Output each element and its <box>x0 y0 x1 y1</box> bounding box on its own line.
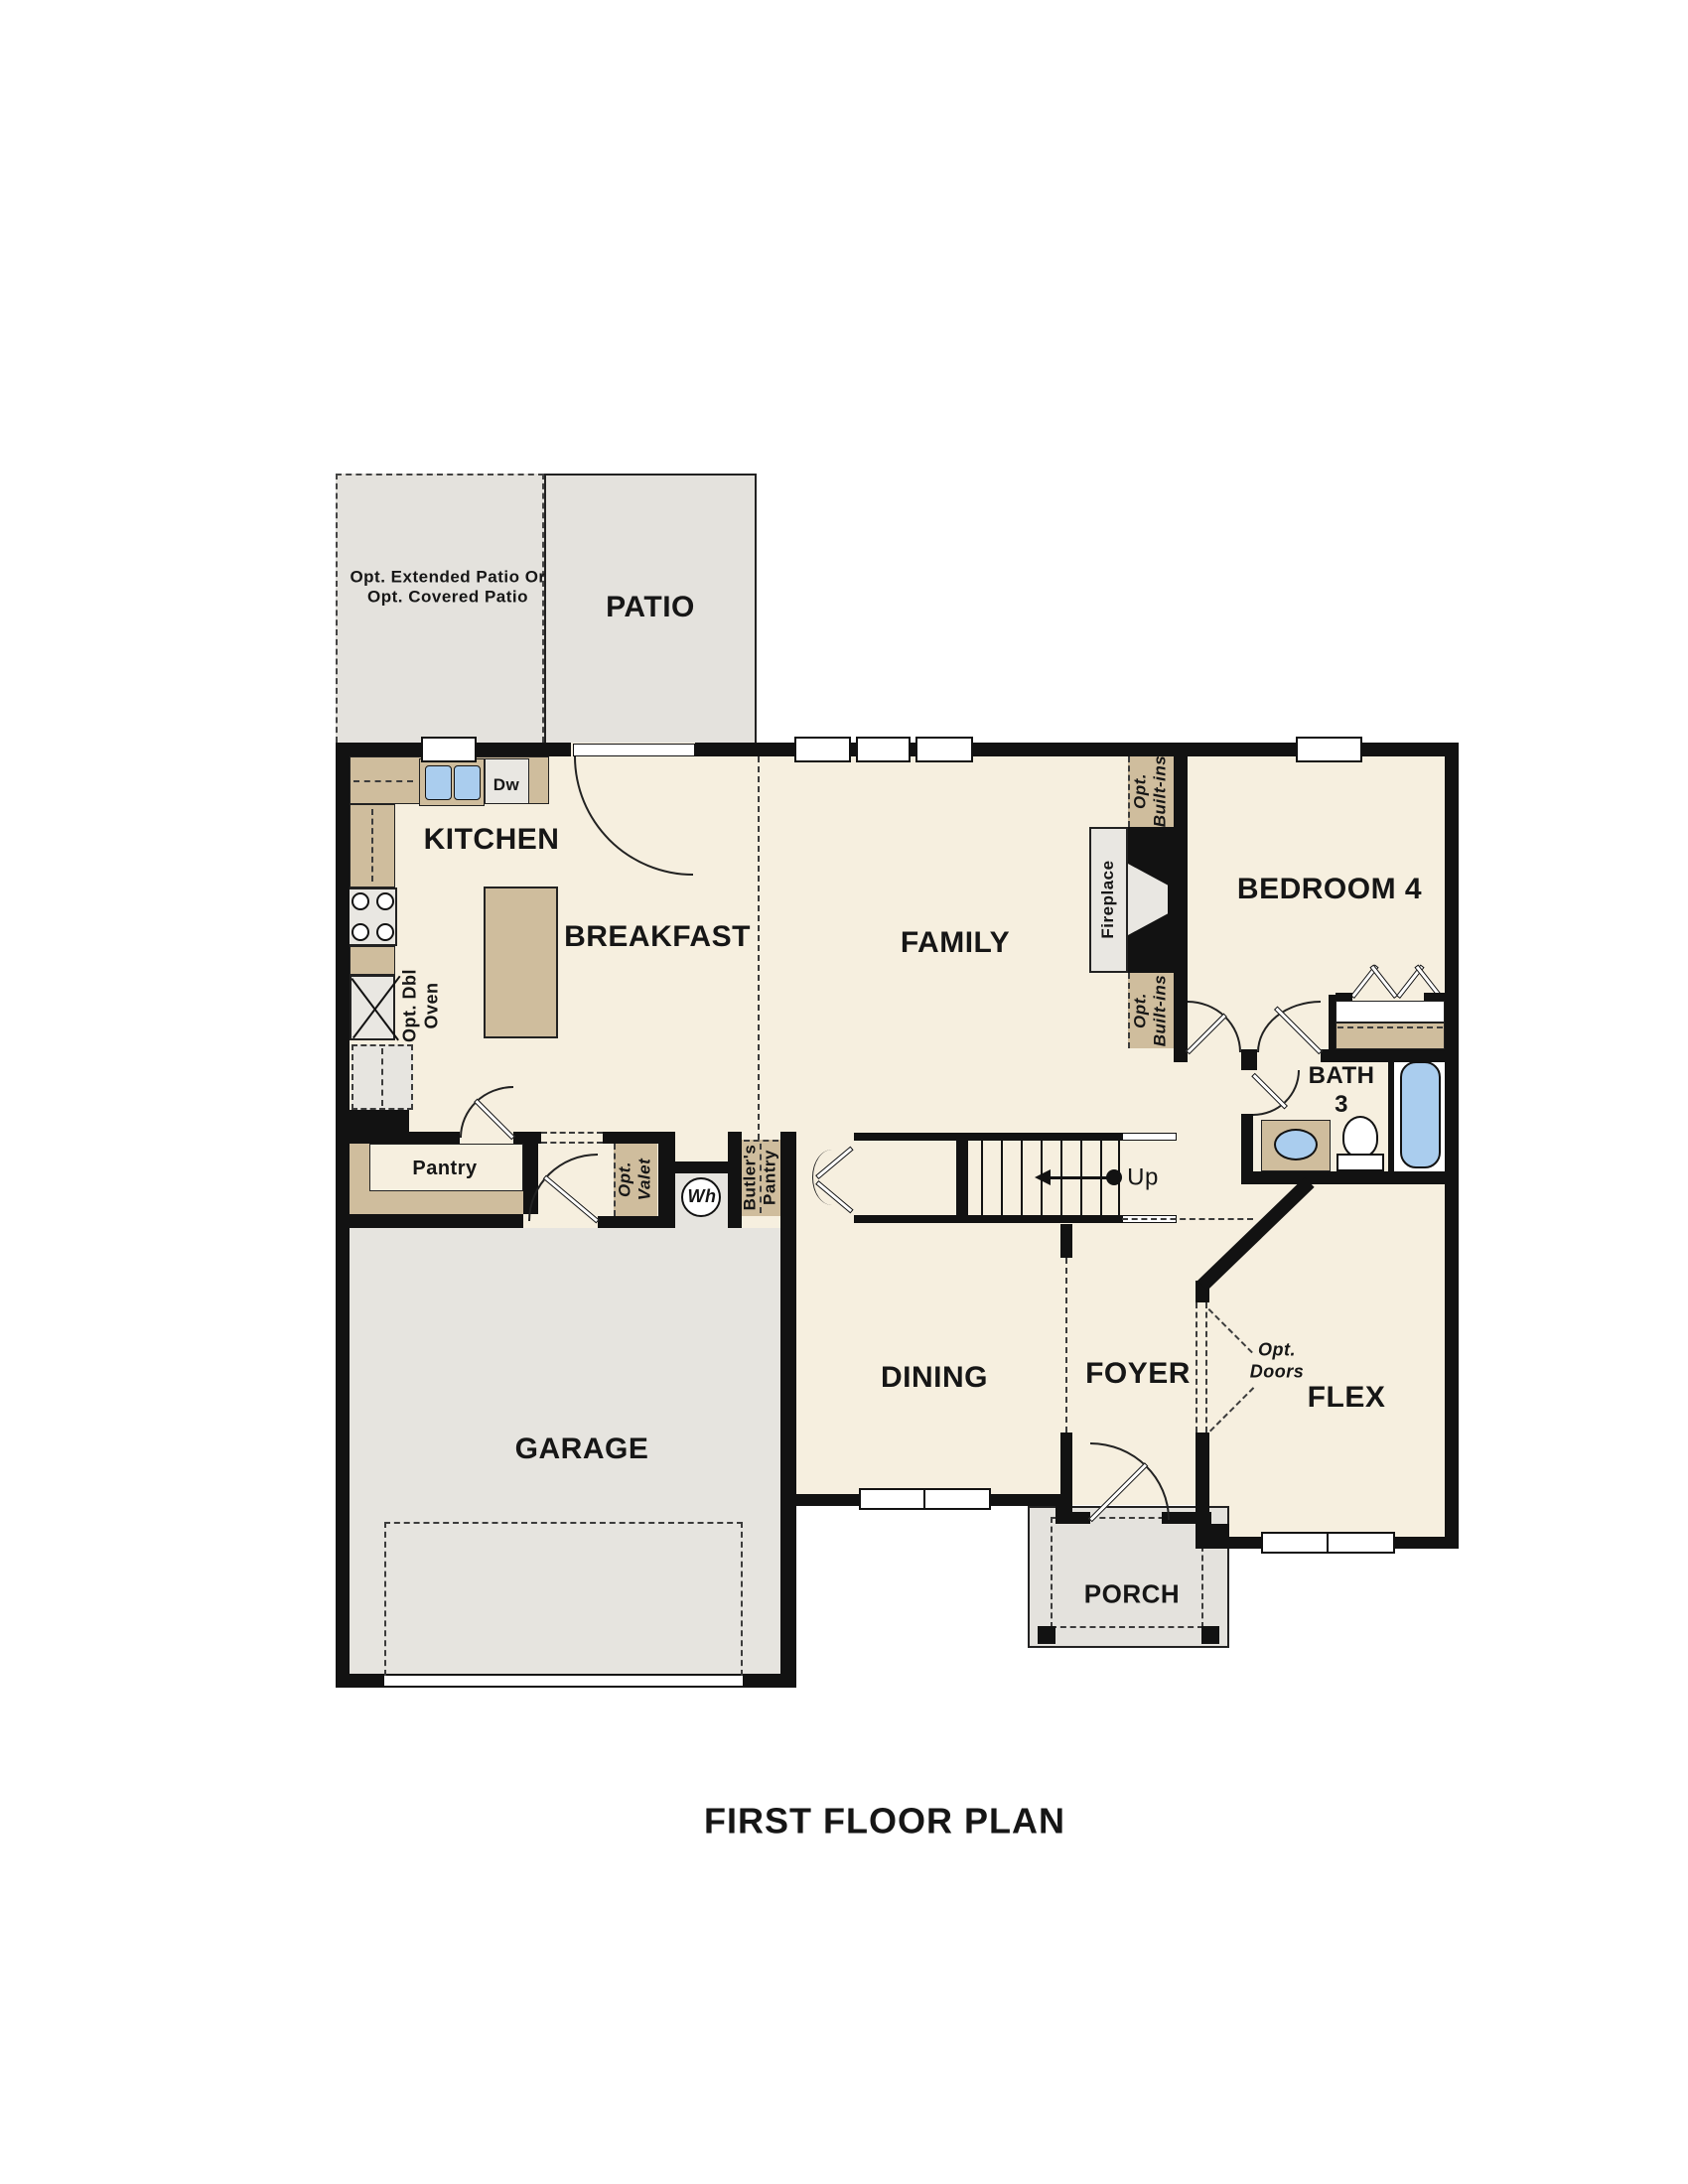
wall-tub-niche <box>1388 1054 1394 1171</box>
toilet-tank <box>1336 1154 1384 1171</box>
room-label-flex: FLEX <box>1308 1380 1386 1416</box>
wall-garage-dining <box>780 1132 796 1688</box>
room-label-bath3: BATH 3 <box>1309 1062 1375 1120</box>
kitchen-island <box>484 887 558 1038</box>
family-window <box>915 737 973 762</box>
room-label-dining: DINING <box>881 1360 988 1396</box>
family-window <box>856 737 911 762</box>
garage-door-opening <box>384 1674 743 1688</box>
water-heater-label: Wh <box>688 1186 717 1208</box>
optional-double-oven-label: Opt. Dbl Oven <box>399 969 442 1042</box>
room-label-bedroom4: BEDROOM 4 <box>1237 872 1422 907</box>
wall-stairs-closet <box>956 1141 968 1215</box>
burner <box>352 923 369 941</box>
optional-cabinet-divider <box>381 1048 383 1106</box>
stair-tread <box>1001 1141 1003 1215</box>
wall-kitchen-stub <box>336 1110 409 1132</box>
optional-builtins-top-label: Opt. Built-ins <box>1131 755 1172 828</box>
room-label-kitchen: KITCHEN <box>424 822 560 858</box>
optional-doors-label: Opt. Doors <box>1250 1339 1305 1382</box>
kitchen-counter-below-range <box>350 946 395 975</box>
garage-door-dashed-outline <box>384 1522 743 1676</box>
optional-valet-label: Opt. Valet <box>616 1159 656 1201</box>
dining-foyer-divider-dashed <box>1065 1258 1067 1433</box>
stair-tread <box>1021 1141 1023 1215</box>
plan-title: FIRST FLOOR PLAN <box>704 1799 1065 1842</box>
stair-arrowhead <box>1035 1169 1051 1185</box>
burner <box>376 923 394 941</box>
bedroom-closet-interior <box>1336 1001 1445 1023</box>
room-label-porch: PORCH <box>1084 1578 1180 1609</box>
wall-garage-top-seg <box>598 1216 658 1228</box>
sink-basin-right <box>454 765 481 800</box>
porch-column-left <box>1038 1626 1055 1644</box>
stair-tread <box>981 1141 983 1215</box>
floor-plan-canvas: Dw Opt. Dbl Oven Pantry Opt. Valet Wh Bu… <box>0 0 1688 2184</box>
stair-dot <box>1106 1169 1122 1185</box>
stair-up-label: Up <box>1127 1164 1159 1193</box>
wall-closet-top-left <box>1336 993 1352 1001</box>
pantry-label: Pantry <box>412 1157 477 1180</box>
butlers-pantry-opening <box>744 1140 778 1142</box>
room-label-breakfast: BREAKFAST <box>564 919 751 955</box>
pantry-shelf-bottom <box>369 1191 523 1214</box>
patio-optional-extension-floor <box>336 474 544 743</box>
counter-depth-line <box>353 780 413 782</box>
wall-stairs-top <box>854 1133 1122 1141</box>
wall-flex-left-bottom <box>1196 1433 1209 1549</box>
wall-porch-post <box>1207 1524 1229 1541</box>
cased-opening-dashed <box>541 1132 603 1134</box>
butlers-pantry-label: Butler's Pantry <box>741 1145 781 1211</box>
wall-pantry-bottom <box>336 1214 523 1228</box>
breakfast-family-divider-dashed <box>758 756 760 1140</box>
wall-stairs-bottom <box>854 1215 1122 1223</box>
bathtub <box>1400 1061 1441 1168</box>
kitchen-window <box>421 737 477 762</box>
wall-closet-left <box>1329 995 1336 1049</box>
wall-right-exterior <box>1445 743 1459 1549</box>
porch-column-right <box>1201 1626 1219 1644</box>
wall-foyer-nib-top <box>1060 1224 1072 1258</box>
flex-opening-dashed <box>1205 1302 1207 1433</box>
wall-closet-top-right <box>1424 993 1445 1001</box>
wall-family-bedroom <box>1174 756 1188 1062</box>
bath-sink <box>1274 1129 1318 1160</box>
flex-opening-dashed <box>1196 1302 1197 1433</box>
burner <box>376 892 394 910</box>
wall-pantry-top-b <box>513 1132 541 1144</box>
wall-foyer-nib-bottom <box>1060 1433 1072 1506</box>
wall-bath-left <box>1241 1114 1253 1171</box>
patio-door-leaf <box>573 744 695 756</box>
flex-window-mullion <box>1327 1534 1329 1552</box>
stair-rail-top <box>1122 1133 1177 1141</box>
cased-opening-dashed <box>541 1142 603 1144</box>
wall-pantry-top-a <box>336 1132 460 1144</box>
room-label-family: FAMILY <box>901 925 1010 961</box>
wall-mudhall-right <box>658 1132 675 1228</box>
wall-nook-butler <box>728 1132 742 1228</box>
room-label-garage: GARAGE <box>515 1432 649 1467</box>
closet-door-arc <box>812 1150 852 1205</box>
dining-window-mullion <box>923 1490 925 1508</box>
closet-rod-dashed <box>1337 1026 1443 1028</box>
hall-foyer-dashed <box>1122 1218 1253 1220</box>
sink-basin-left <box>425 765 452 800</box>
counter-depth-line <box>371 809 373 882</box>
fireplace-label: Fireplace <box>1098 860 1118 938</box>
stair-direction-line <box>1051 1176 1114 1179</box>
dishwasher-label: Dw <box>493 775 520 795</box>
wall-door-nib <box>1241 1049 1257 1070</box>
wall-mudhall-top <box>603 1132 658 1144</box>
family-window <box>794 737 851 762</box>
porch-inner-dashed-outline <box>1051 1517 1203 1628</box>
bedroom-window <box>1296 737 1362 762</box>
pantry-shelf-left <box>350 1144 369 1214</box>
optional-builtins-bottom-label: Opt. Built-ins <box>1131 975 1172 1047</box>
wall-bath-bottom <box>1241 1171 1459 1184</box>
room-label-foyer: FOYER <box>1085 1356 1191 1392</box>
room-label-patio: PATIO <box>606 590 695 625</box>
optional-patio-note: Opt. Extended Patio Or Opt. Covered Pati… <box>350 568 545 609</box>
wall-nook-top <box>675 1161 728 1173</box>
burner <box>352 892 369 910</box>
toilet-bowl <box>1342 1116 1378 1158</box>
wall-bedroom-bottom <box>1321 1049 1445 1062</box>
